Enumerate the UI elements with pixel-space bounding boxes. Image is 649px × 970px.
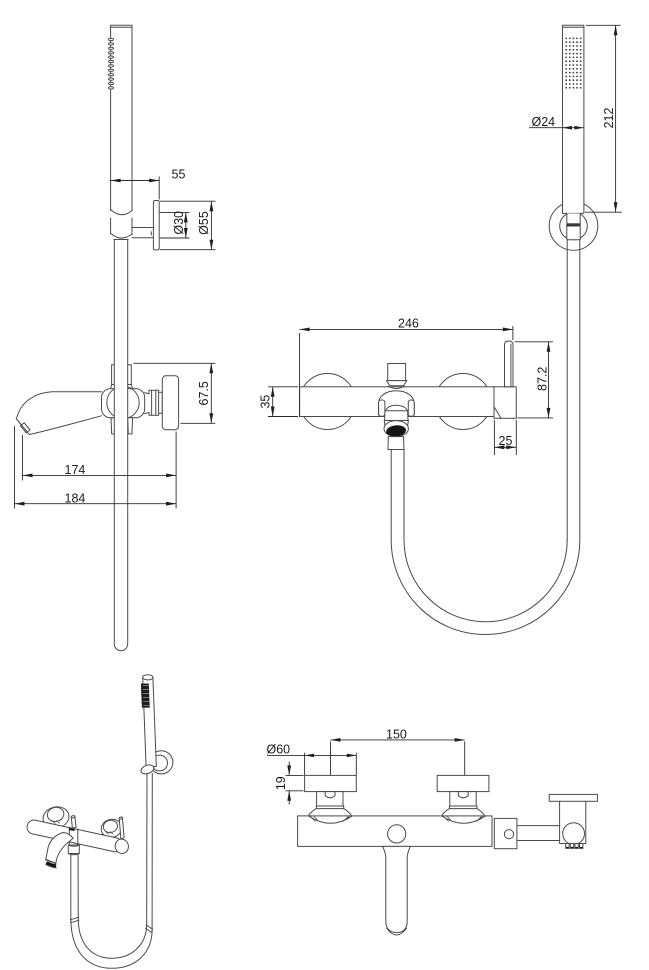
svg-text:55: 55 xyxy=(172,168,186,182)
svg-text:Ø55: Ø55 xyxy=(197,211,211,235)
svg-text:246: 246 xyxy=(398,317,419,331)
svg-text:19: 19 xyxy=(274,776,288,790)
svg-text:150: 150 xyxy=(386,728,407,742)
svg-text:184: 184 xyxy=(65,492,86,506)
svg-text:Ø30: Ø30 xyxy=(172,211,186,235)
svg-text:212: 212 xyxy=(602,108,616,129)
svg-text:Ø60: Ø60 xyxy=(267,743,291,757)
svg-text:87.2: 87.2 xyxy=(536,367,550,391)
svg-text:Ø24: Ø24 xyxy=(532,115,556,129)
svg-text:35: 35 xyxy=(259,395,273,409)
svg-text:174: 174 xyxy=(65,463,86,477)
svg-text:25: 25 xyxy=(499,434,513,448)
svg-text:67.5: 67.5 xyxy=(197,381,211,405)
